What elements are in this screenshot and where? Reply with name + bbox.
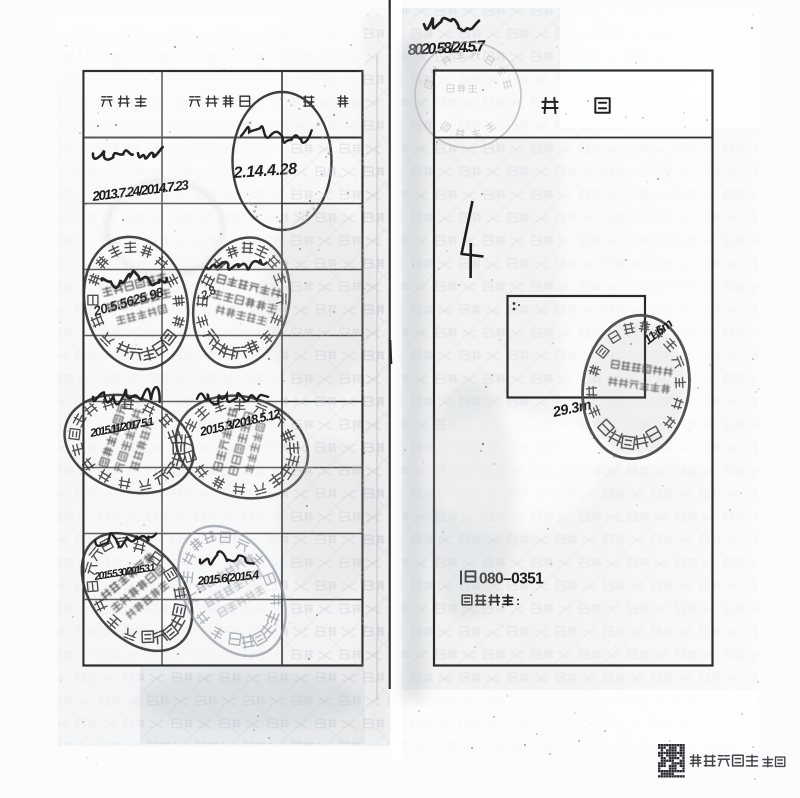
svg-text::: : [516,594,520,608]
